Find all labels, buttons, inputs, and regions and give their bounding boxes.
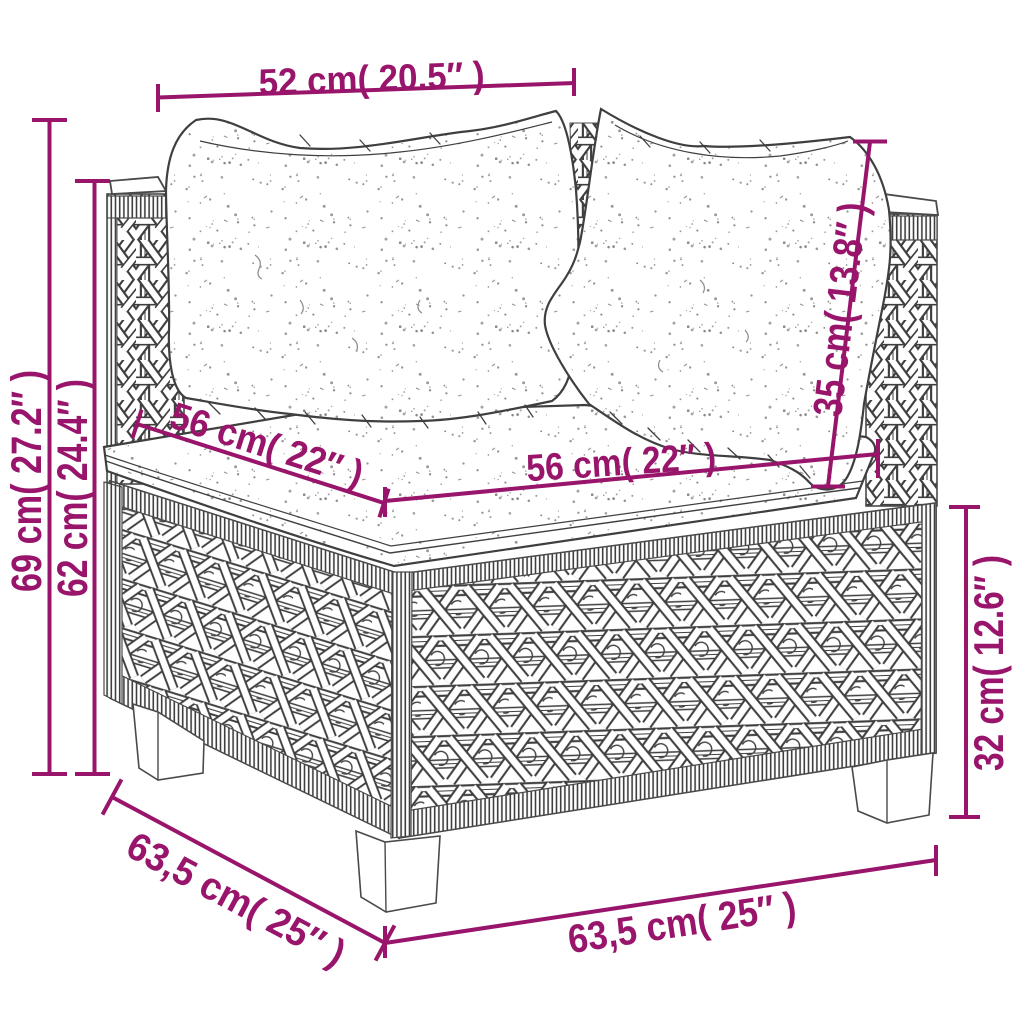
- svg-text:32 cm( 12.6″ ): 32 cm( 12.6″ ): [965, 555, 1012, 771]
- svg-text:52 cm( 20.5″ ): 52 cm( 20.5″ ): [258, 54, 485, 103]
- svg-text:62 cm( 24.4″ ): 62 cm( 24.4″ ): [49, 379, 97, 597]
- svg-text:69 cm( 27.2″ ): 69 cm( 27.2″ ): [3, 370, 51, 592]
